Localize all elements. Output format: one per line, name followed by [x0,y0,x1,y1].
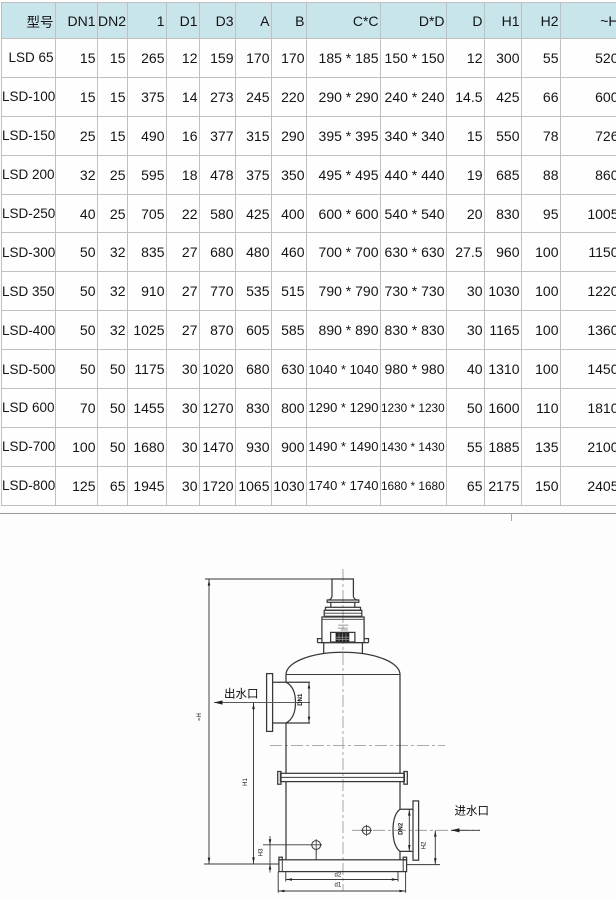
svg-text:DN2: DN2 [399,822,405,835]
svg-text:H1: H1 [243,778,249,786]
svg-text:DN1: DN1 [298,693,304,706]
svg-text:H2: H2 [422,841,428,849]
svg-text:H3: H3 [259,848,265,856]
svg-text:≈H: ≈H [197,713,203,721]
svg-text:d2: d2 [335,873,342,879]
svg-text:d1: d1 [335,883,342,889]
svg-text:出水口: 出水口 [224,687,259,701]
svg-text:进水口: 进水口 [455,805,490,818]
